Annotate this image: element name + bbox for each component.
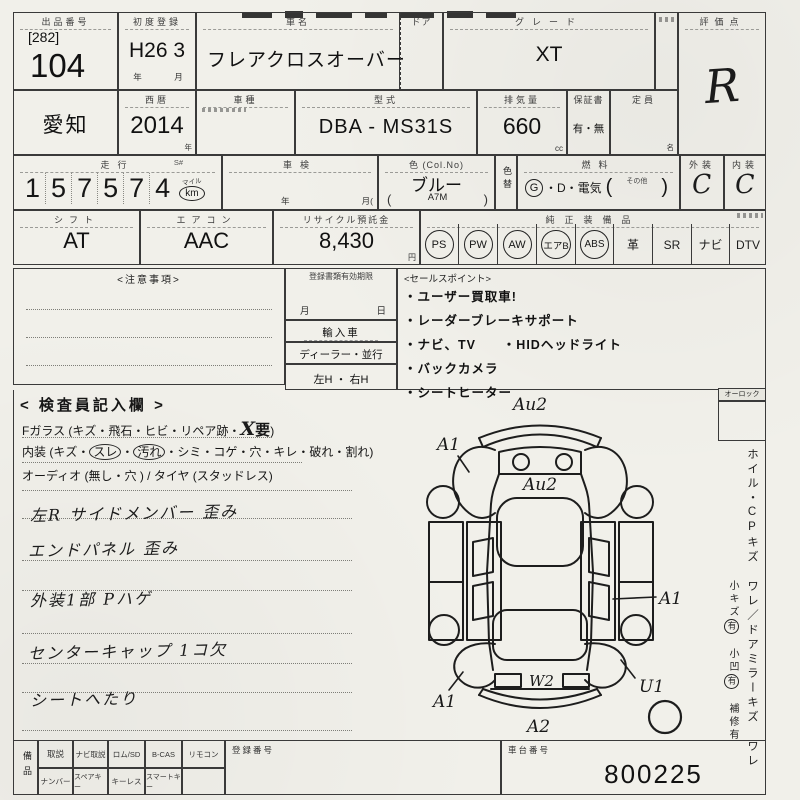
caution-label: <注意事項> [14, 269, 284, 286]
recycle-fee-cell: リサイクル預託金 8,430 円 [273, 210, 420, 265]
displacement-cell: 排気量 660 cc [477, 90, 567, 155]
color-code: A7M [428, 192, 448, 203]
key-lock-label-box: オーロック [718, 388, 766, 401]
interior-sep: ・ [121, 445, 133, 459]
audio-line: オーディオ (無し・穴 ) / タイヤ (スタッドレス) [22, 467, 273, 484]
bottom-items-label: 備品 [21, 751, 34, 781]
inspection-year-unit: 年 [281, 195, 290, 207]
color-paren-close: ) [484, 192, 488, 207]
car-damage-diagram: Au2 A1 Au2 A1 A1 U1 W2 A2 [425, 392, 715, 744]
car-name-label: 車名 [203, 13, 393, 30]
registration-number-box: 登録番号 [225, 740, 501, 795]
odo-digit: 4 [150, 173, 175, 204]
region-cell: 愛知 [13, 90, 118, 155]
capacity-cell: 定員 名 [610, 90, 678, 155]
mileage-s-label: S# [174, 158, 183, 167]
km-unit-badge: マイル km [179, 176, 204, 201]
interior-grade-cell: 内装 C [724, 155, 766, 210]
mark-rear-bumper: A2 [525, 717, 550, 737]
mark-rear-right-fender: U1 [639, 677, 664, 697]
equip-abs: ABS [580, 230, 609, 259]
caution-line [26, 337, 272, 338]
mark-hood: Au2 [521, 475, 557, 495]
type-value: DBA - MS31S [296, 116, 476, 139]
item-remote-cell: リモコン [182, 740, 225, 768]
small-dent-yes-circled: 有 [724, 674, 739, 689]
caution-box: <注意事項> [13, 268, 285, 385]
item-bcas-cell: B-CAS [145, 740, 182, 768]
displacement-label: 排気量 [484, 91, 560, 108]
capacity-unit: 名 [667, 142, 675, 153]
inspector-heading: < 検査員記入欄 > [20, 394, 166, 415]
memo-note: 左R サイドメンバー 歪み [30, 498, 239, 526]
first-registration-units: 年 月 [119, 71, 195, 83]
first-registration-label: 初度登録 [125, 13, 189, 30]
sales-point: ・ユーザー買取車! [398, 285, 765, 309]
recycle-fee-label: リサイクル預託金 [280, 211, 413, 228]
item-empty-cell [182, 768, 225, 795]
equip-cell-navi: ナビ [691, 224, 729, 265]
fuel-cell: 燃料 G ・D・電気 ( その他 ) [517, 155, 680, 210]
import-label: 輸入車 [304, 325, 378, 341]
docs-expiry-label: 登録書類有効期限 [286, 269, 396, 282]
bottom-items-cell: 備品 [13, 740, 38, 795]
displacement-value: 660 [478, 113, 566, 140]
lot-number-cell: 出品番号 [282] 104 [13, 12, 118, 90]
fuel-other-options: ・D・電気 [545, 179, 602, 196]
import-cell: 輸入車 [285, 320, 397, 342]
item-spare-key: スペアキー [74, 772, 107, 792]
displacement-unit: cc [555, 144, 563, 153]
memo-note: センターキャップ 1コ欠 [28, 636, 228, 664]
small-damage-note: 小キズ有 小凹有 補修有 [724, 580, 740, 740]
type-label: 型式 [302, 91, 470, 108]
interior-grade: C [724, 169, 766, 201]
inspection-month-unit: 月( [362, 195, 373, 207]
car-name: フレアクロスオーバー [197, 45, 399, 72]
item-rom-sd-cell: ロム/SD [108, 740, 145, 768]
small-scratch-label: 小キズ [727, 580, 738, 619]
handle-cell: 左H ・ 右H [285, 364, 397, 390]
shift-value: AT [14, 228, 139, 254]
color-paren-open: ( [387, 192, 391, 207]
equip-navi: ナビ [698, 236, 722, 253]
warranty-value: 有・無 [568, 121, 609, 136]
odo-digit: 5 [98, 173, 124, 204]
odo-digit: 5 [46, 173, 72, 204]
color-cell: 色 (Col.No) ブルー ( A7M ) [378, 155, 495, 210]
mark-front-left-fender: A1 [435, 435, 460, 455]
dealer-parallel-cell: ディーラー・並行 [285, 342, 397, 364]
score-value: R [677, 56, 767, 116]
year-label: 西暦 [125, 91, 189, 108]
interior-line-prefix: 内装 (キズ・ [22, 445, 89, 459]
fuel-label: 燃料 [524, 156, 673, 173]
small-dent-label: 小凹 [727, 648, 738, 674]
door-cell: ドア [400, 12, 443, 90]
grade-cell: グレード XT [443, 12, 655, 90]
mile-label: マイル [182, 175, 203, 188]
equip-dtv: DTV [736, 238, 760, 252]
memo-line [22, 633, 352, 634]
memo-note: エンドパネル 歪み [28, 534, 180, 561]
chassis-number-label: 車台番号 [508, 744, 550, 756]
shift-cell: シフト AT [13, 210, 140, 265]
equip-cell-dtv: DTV [729, 224, 766, 265]
mark-front-bumper: Au2 [511, 395, 547, 415]
docs-expiry-units: 月 日 [300, 303, 386, 317]
memo-note: シートへたり [30, 685, 138, 711]
inspection-cell: 車検 年 月( [222, 155, 378, 210]
equipment-corner-fine-print [737, 213, 763, 218]
lot-number-label: 出品番号 [20, 13, 111, 30]
km-circled: km [179, 186, 204, 201]
clipped-title-fragments [242, 0, 572, 9]
caution-line [26, 309, 272, 310]
interior-line-suffix: ・シミ・コゲ・穴・キレ・破れ・割れ) [165, 445, 373, 459]
exterior-grade-cell: 外装 C [680, 155, 724, 210]
sales-point: ・ナビ、TV ・HIDヘッドライト [398, 333, 765, 357]
mileage-cell: 走行 S# 1 5 7 5 7 4 マイル km [13, 155, 222, 210]
odo-digit: 7 [124, 173, 150, 204]
equip-cell-sr: SR [652, 224, 691, 265]
recycle-fee-unit: 円 [408, 252, 416, 263]
odometer: 1 5 7 5 7 4 マイル km [20, 173, 205, 204]
docs-day: 日 [376, 303, 386, 317]
guide-line [22, 462, 302, 463]
aircon-cell: エアコン AAC [140, 210, 273, 265]
item-rom-sd: ロム/SD [113, 749, 141, 760]
fuel-value-row: G ・D・電気 ( その他 ) [525, 176, 668, 199]
item-number-plate-cell: ナンバー [38, 768, 73, 795]
score-label: 評価点 [685, 13, 759, 30]
year-unit: 年 [185, 142, 193, 153]
car-name-cell: 車名 フレアクロスオーバー [196, 12, 400, 90]
fuel-gasoline-circled: G [525, 179, 543, 197]
equip-leather: 革 [627, 236, 639, 253]
interior-line: 内装 (キズ・スレ・汚れ・シミ・コゲ・穴・キレ・破れ・割れ) [22, 443, 373, 460]
equip-cell-leather: 革 [613, 224, 652, 265]
color-code-row: ( A7M ) [387, 192, 488, 207]
first-registration-cell: 初度登録 H26 3 年 月 [118, 12, 196, 90]
odo-digit: 7 [72, 173, 98, 204]
key-lock-label: オーロック [719, 389, 765, 399]
sales-points-box: <セールスポイント> ・ユーザー買取車! ・レーダーブレーキサポート ・ナビ、T… [397, 268, 766, 390]
year-value: 2014 [119, 112, 195, 140]
item-number-plate: ナンバー [41, 776, 71, 787]
glass-line-text: Fガラス (キズ・飛石・ヒビ・リペア跡・ [22, 424, 240, 438]
equip-ps: PS [425, 230, 454, 259]
interior-scuff-circled: スレ [89, 444, 121, 460]
lot-number: 104 [14, 47, 117, 85]
type-cell: 型式 DBA - MS31S [295, 90, 477, 155]
equip-cell-abs: ABS [575, 224, 613, 265]
chassis-number: 800225 [502, 759, 765, 790]
equip-airbag: エアB [541, 230, 570, 259]
mark-right-door: A1 [657, 589, 682, 609]
mark-rear-gate: W2 [529, 672, 554, 690]
item-keyless: キーレス [112, 776, 142, 787]
auction-sheet: 出品番号 [282] 104 初度登録 H26 3 年 月 車名 フレアクロスオ… [0, 0, 800, 800]
year-cell: 西暦 2014 年 [118, 90, 196, 155]
item-smart-key-cell: スマートキー [145, 768, 182, 795]
docs-expiry-cell: 登録書類有効期限 月 日 [285, 268, 397, 320]
wheel-mirror-note: ホイル・CPキズ ワレ／ドアミラーキズ ワレ [744, 448, 760, 738]
equip-cell-airbag: エアB [536, 224, 575, 265]
fuel-paren-open: ( [606, 176, 613, 199]
warranty-label: 保証書 [568, 91, 609, 106]
region-value: 愛知 [14, 109, 117, 139]
first-registration-value: H26 3 [119, 39, 195, 63]
door-label: ドア [401, 13, 442, 28]
memo-line [22, 490, 352, 491]
equip-aw: AW [503, 230, 532, 259]
odo-digit: 1 [20, 173, 46, 204]
chassis-number-box: 車台番号 800225 [501, 740, 766, 795]
registration-number-label: 登録番号 [232, 744, 274, 756]
recycle-fee-value: 8,430 [274, 228, 419, 254]
history-cell [655, 12, 678, 90]
item-bcas: B-CAS [152, 750, 175, 759]
docs-month: 月 [300, 303, 310, 317]
caution-line [26, 365, 272, 366]
illegible-label [659, 17, 676, 22]
equip-pw: PW [464, 230, 493, 259]
small-scratch-yes-circled: 有 [724, 619, 739, 634]
inspection-label: 車検 [229, 156, 371, 173]
handle-label: 左H ・ 右H [286, 371, 396, 387]
shift-label: シフト [20, 211, 133, 228]
aircon-label: エアコン [147, 211, 266, 228]
fuel-paren-close: ) [661, 176, 668, 199]
grade-value: XT [444, 43, 654, 67]
mark-rear-left-fender: A1 [431, 692, 456, 712]
sales-points-label: <セールスポイント> [398, 269, 765, 285]
key-lock-box [718, 401, 766, 441]
interior-stain-circled: 汚れ [133, 444, 165, 460]
item-smart-key: スマートキー [146, 772, 181, 792]
model-cell: 車種 [196, 90, 295, 155]
guide-line [22, 437, 272, 438]
equip-sr: SR [664, 238, 681, 252]
warranty-cell: 保証書 有・無 [567, 90, 610, 155]
grade-label: グレード [450, 13, 648, 30]
lot-bracket: [282] [14, 29, 117, 45]
item-manual: 取説 [47, 748, 64, 760]
item-keyless-cell: キーレス [108, 768, 145, 795]
color-change-label: 色替 [501, 166, 514, 192]
model-label: 車種 [203, 91, 288, 108]
memo-line [22, 730, 352, 731]
equip-cell-pw: PW [458, 224, 497, 265]
equip-cell-aw: AW [497, 224, 536, 265]
dealer-parallel-label: ディーラー・並行 [286, 347, 396, 362]
capacity-label: 定員 [611, 91, 677, 106]
glass-paren: ) [270, 424, 274, 438]
item-navi-manual: ナビ取説 [76, 749, 106, 760]
item-spare-key-cell: スペアキー [73, 768, 108, 795]
equip-cell-ps: PS [420, 224, 458, 265]
item-remote: リモコン [189, 749, 219, 760]
aircon-value: AAC [141, 228, 272, 254]
color-change-cell: 色替 [495, 155, 517, 210]
repair-label: 補修有 [727, 703, 738, 742]
fuel-other-label: その他 [626, 176, 647, 186]
sales-point: ・レーダーブレーキサポート [398, 309, 765, 333]
item-manual-cell: 取説 [38, 740, 73, 768]
score-cell: 評価点 R [678, 12, 766, 155]
sales-point: ・バックカメラ [398, 357, 765, 381]
exterior-grade: C [680, 168, 724, 202]
memo-note: 外装1部 Pハゲ [30, 585, 153, 612]
mileage-label: 走行 [20, 156, 215, 173]
item-navi-manual-cell: ナビ取説 [73, 740, 108, 768]
model-fine-print [202, 108, 246, 112]
